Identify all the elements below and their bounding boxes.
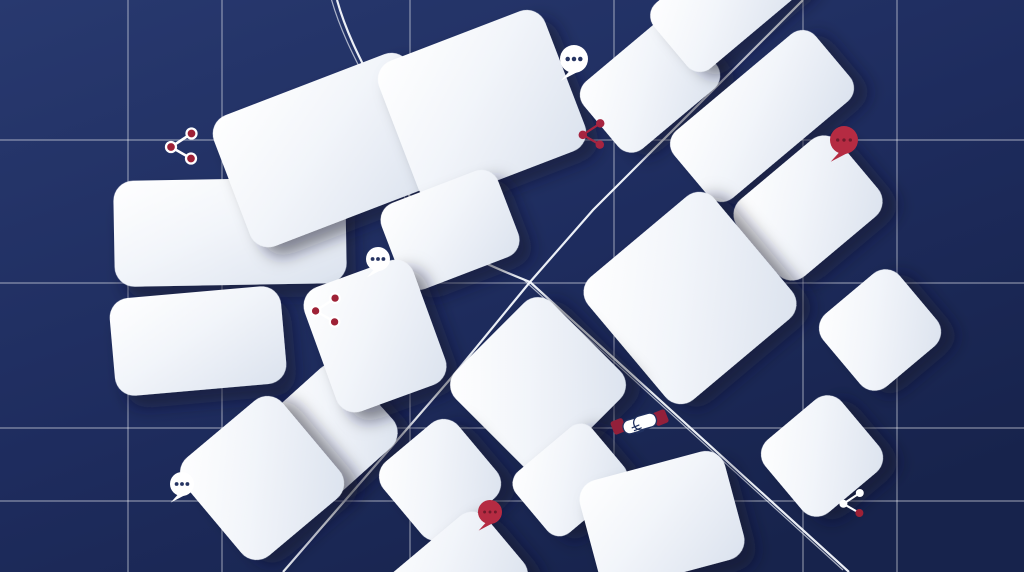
share-node-dot: [856, 489, 864, 497]
chat-dot: [376, 257, 380, 261]
chat-dot: [185, 482, 189, 486]
chat-dot: [489, 511, 492, 514]
chat-dot: [565, 57, 569, 61]
share-node-dot: [330, 293, 340, 303]
chat-dot: [836, 138, 839, 141]
chat-dot: [578, 57, 582, 61]
share-node-dot: [187, 129, 197, 139]
share-node-dot: [166, 142, 176, 152]
share-node-dot: [330, 317, 340, 327]
abstract-map-illustration: [0, 0, 1024, 572]
share-node-dot: [855, 509, 863, 517]
share-node-dot: [186, 154, 196, 164]
chat-dot: [180, 482, 184, 486]
share-node-dot: [311, 306, 321, 316]
chat-dot: [849, 138, 852, 141]
chat-dot: [494, 511, 497, 514]
share-node-dot: [579, 131, 588, 140]
chat-dot: [842, 138, 845, 141]
map-tile: [108, 285, 288, 398]
share-node-dot: [596, 119, 605, 128]
share-node-dot: [596, 140, 605, 149]
chat-dot: [381, 257, 385, 261]
share-node-dot: [839, 500, 847, 508]
chat-dot: [572, 57, 576, 61]
scene-canvas: [0, 0, 1024, 572]
chat-dot: [371, 257, 375, 261]
chat-dot: [175, 482, 179, 486]
chat-dot: [483, 511, 486, 514]
